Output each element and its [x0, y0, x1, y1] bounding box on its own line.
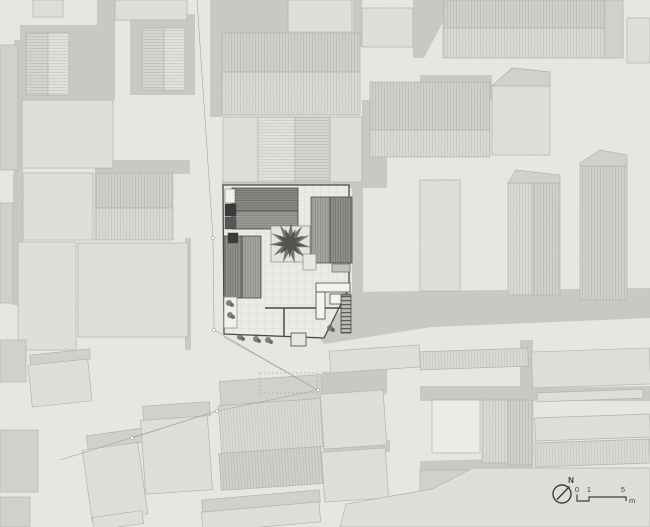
bench	[303, 254, 316, 270]
plant	[257, 339, 261, 343]
plant	[241, 337, 245, 341]
north-label: N	[568, 476, 574, 485]
survey-node	[211, 236, 214, 239]
site-plan-svg: N 0 1 5 m	[0, 0, 650, 527]
scale-tick-0: 0	[575, 485, 579, 494]
survey-node	[212, 328, 215, 331]
entry-block	[225, 189, 235, 203]
stair	[341, 295, 351, 333]
entry-block	[228, 233, 238, 243]
entry-block	[225, 217, 236, 229]
scale-unit: m	[629, 496, 635, 505]
house-roof	[311, 197, 330, 263]
site-plan: N 0 1 5 m	[0, 0, 650, 527]
survey-node	[215, 409, 218, 412]
scale-tick-1: 1	[587, 485, 591, 494]
house-roof	[242, 236, 261, 298]
plant	[269, 340, 273, 344]
sofa	[316, 292, 325, 319]
plant	[331, 328, 335, 332]
scale-tick-5: 5	[621, 485, 625, 494]
plant	[231, 315, 235, 319]
house-roof	[330, 197, 352, 263]
porch	[291, 333, 306, 346]
entry-block	[225, 204, 236, 216]
survey-node	[130, 436, 133, 439]
table	[332, 264, 350, 272]
house-roof	[232, 188, 298, 211]
plant	[230, 303, 234, 307]
sofa	[316, 283, 350, 292]
house-roof	[224, 236, 242, 298]
